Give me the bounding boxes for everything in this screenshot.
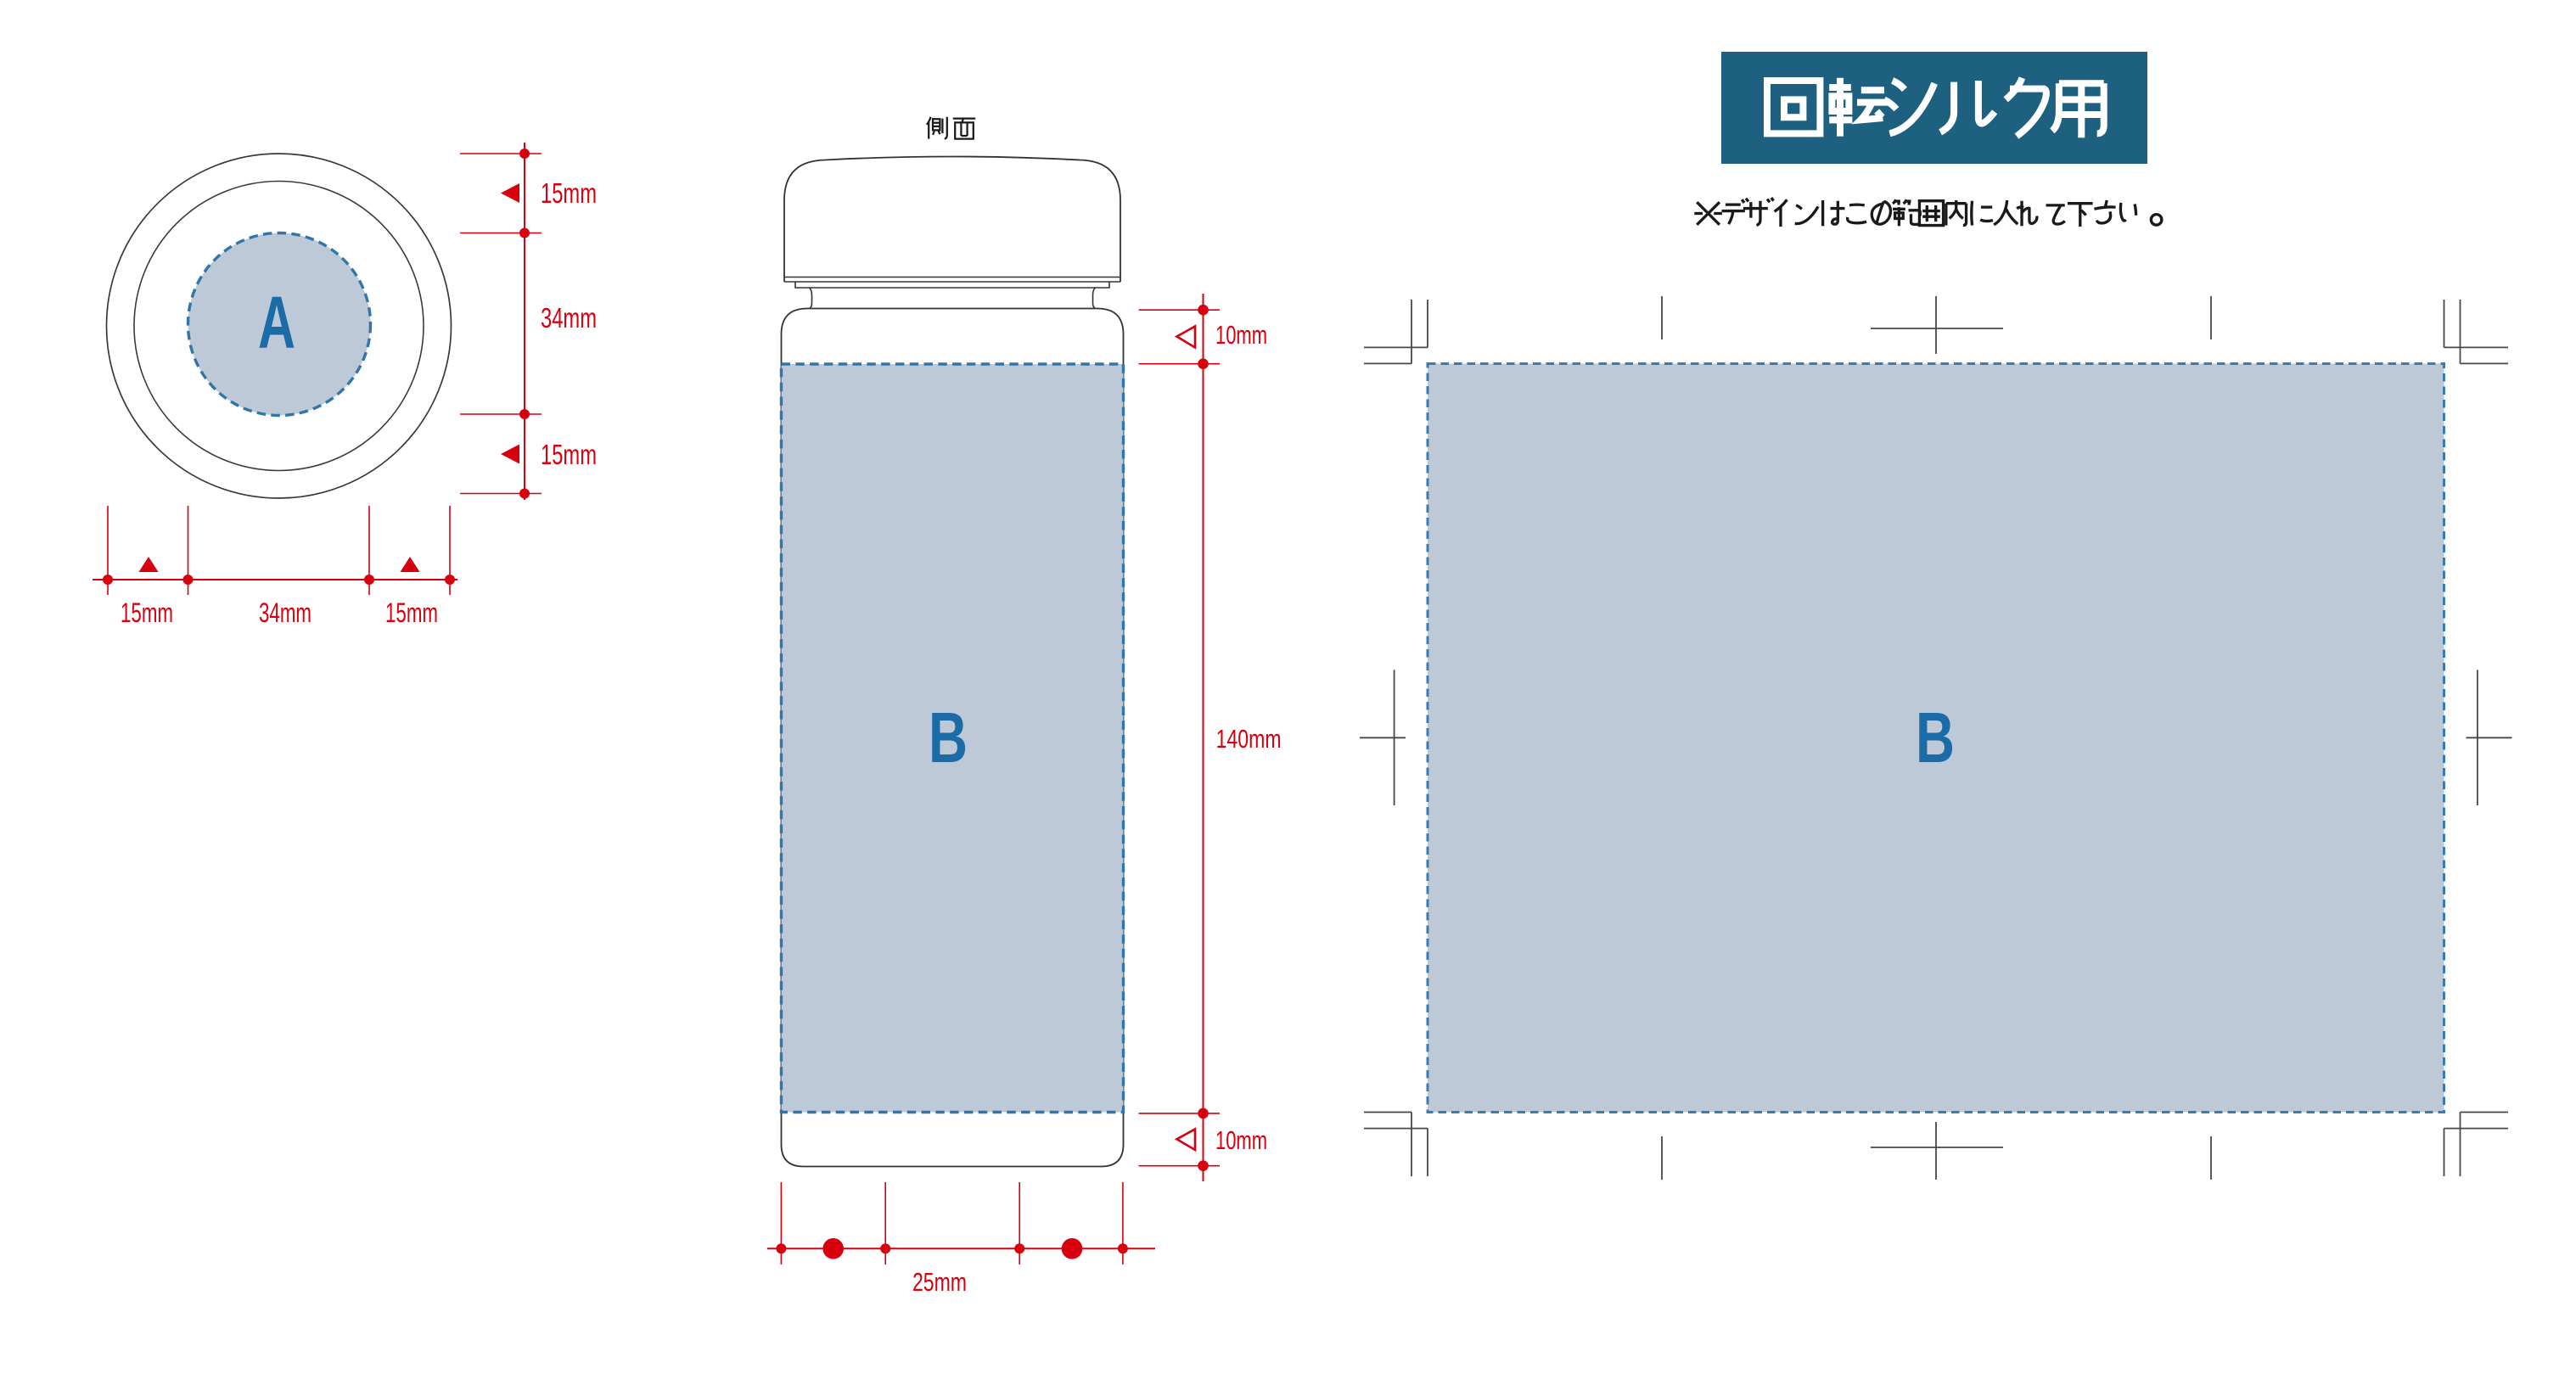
svg-text:140mm: 140mm	[1216, 724, 1282, 754]
svg-text:15mm: 15mm	[121, 597, 173, 628]
svg-text:B: B	[929, 698, 968, 777]
svg-text:B: B	[1916, 698, 1955, 777]
svg-text:34mm: 34mm	[259, 597, 311, 628]
svg-text:25mm: 25mm	[912, 1267, 967, 1297]
svg-text:15mm: 15mm	[541, 177, 597, 209]
svg-text:A: A	[258, 282, 295, 364]
svg-text:34mm: 34mm	[541, 302, 597, 334]
svg-text:10mm: 10mm	[1215, 320, 1267, 350]
svg-text:10mm: 10mm	[1215, 1125, 1267, 1155]
svg-text:15mm: 15mm	[541, 439, 597, 470]
svg-text:15mm: 15mm	[385, 597, 438, 628]
